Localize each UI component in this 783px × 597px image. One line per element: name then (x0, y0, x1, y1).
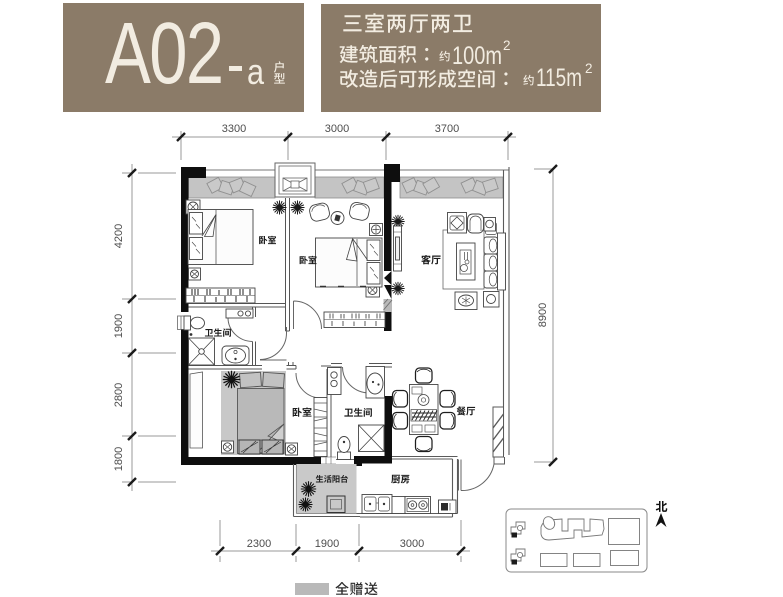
svg-text:100m: 100m (452, 42, 502, 70)
svg-text:3300: 3300 (222, 123, 246, 135)
svg-text:2800: 2800 (113, 383, 125, 407)
svg-text:4200: 4200 (113, 224, 125, 248)
svg-text:1800: 1800 (113, 447, 125, 471)
svg-text:3000: 3000 (325, 123, 349, 135)
svg-text:1900: 1900 (113, 314, 125, 338)
svg-text:2: 2 (503, 38, 511, 53)
svg-text:2: 2 (585, 61, 593, 76)
svg-text:1900: 1900 (315, 538, 339, 550)
svg-text:2300: 2300 (247, 538, 271, 550)
svg-text:115m: 115m (536, 64, 582, 92)
svg-text:3000: 3000 (400, 538, 424, 550)
svg-text:8900: 8900 (537, 303, 549, 327)
svg-text:3700: 3700 (435, 123, 459, 135)
